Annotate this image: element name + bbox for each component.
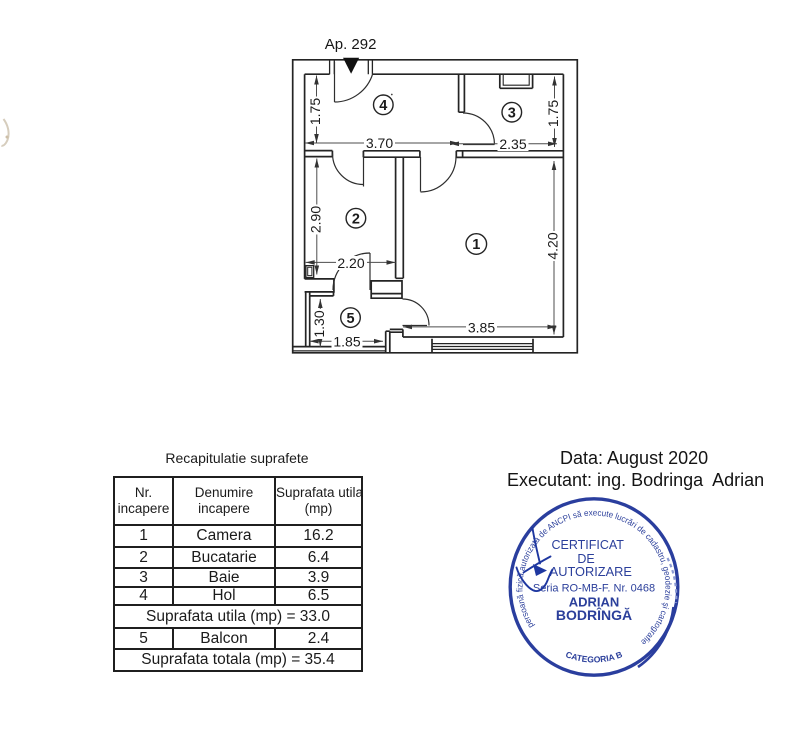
svg-text:4.20: 4.20 [545, 232, 561, 259]
svg-text:2.35: 2.35 [499, 136, 526, 152]
svg-text:1.30: 1.30 [311, 310, 327, 337]
svg-text:CERTIFICAT: CERTIFICAT [551, 538, 624, 552]
svg-text:2.20: 2.20 [337, 255, 364, 271]
svg-text:AUTORIZARE: AUTORIZARE [550, 564, 632, 579]
svg-text:1.85: 1.85 [333, 334, 360, 350]
svg-text:2: 2 [352, 211, 360, 227]
svg-text:3.70: 3.70 [366, 135, 393, 151]
svg-text:BODRÎNGĂ: BODRÎNGĂ [556, 606, 632, 623]
svg-text:CATEGORIA B: CATEGORIA B [564, 649, 623, 664]
svg-text:1.75: 1.75 [307, 98, 323, 125]
svg-text:1: 1 [472, 237, 480, 253]
svg-text:Seria RO-MB-F. Nr. 0468: Seria RO-MB-F. Nr. 0468 [533, 582, 655, 594]
svg-text:2.90: 2.90 [308, 206, 324, 233]
svg-text:3: 3 [508, 105, 516, 121]
svg-text:1.75: 1.75 [545, 100, 561, 127]
svg-text:3.85: 3.85 [468, 320, 495, 336]
svg-text:4: 4 [379, 98, 387, 114]
svg-text:Ap. 292: Ap. 292 [325, 36, 377, 53]
svg-text:5: 5 [346, 311, 354, 327]
